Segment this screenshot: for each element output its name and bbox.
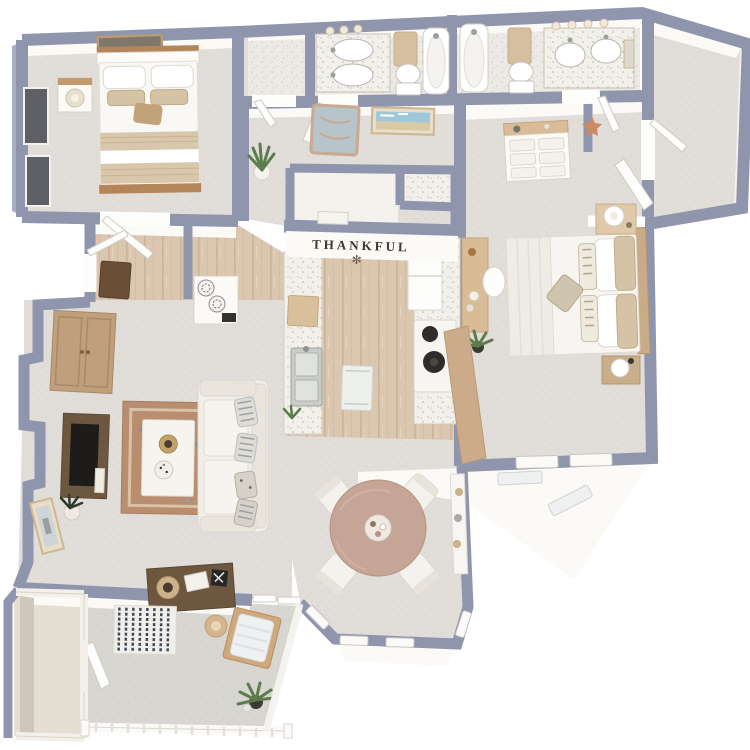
tv: [69, 423, 99, 486]
toilet: [396, 64, 421, 95]
sofa-arm: [200, 380, 256, 396]
throw-pillow: [133, 102, 163, 125]
books: [222, 313, 236, 322]
dresser: [504, 120, 571, 181]
decor: [626, 222, 632, 228]
kitchen-sink: [291, 346, 322, 406]
window: [340, 636, 368, 646]
vanity-light: [326, 27, 334, 35]
toilet: [509, 62, 534, 93]
bathroom-1: [316, 25, 449, 95]
window: [516, 455, 558, 468]
table-lamp: [611, 359, 629, 377]
thankful-decor-icon: ✻: [351, 253, 361, 267]
centerpiece: [365, 515, 391, 541]
tv-console: [61, 413, 110, 499]
window: [26, 156, 50, 206]
bathroom-2: [460, 19, 634, 93]
faucet: [433, 33, 439, 39]
vanity-light: [340, 26, 348, 34]
decor: [466, 304, 474, 312]
wall-quote-text: THANKFUL: [312, 237, 410, 255]
decorative-plate: [198, 280, 214, 296]
pillow: [234, 471, 257, 500]
doormat: [99, 261, 131, 299]
vanity: [544, 19, 634, 88]
pillow: [614, 236, 636, 291]
vanity-light: [354, 25, 362, 33]
beach-art: [372, 107, 435, 135]
pillow: [234, 433, 258, 464]
pillow: [150, 89, 187, 105]
console-table: [194, 276, 238, 324]
desk-chair: [483, 267, 505, 297]
writing-desk: [147, 563, 236, 613]
decor: [544, 123, 550, 129]
queen-bed: [97, 45, 202, 194]
pillow: [103, 66, 145, 89]
sink: [591, 39, 621, 63]
decor: [455, 488, 463, 496]
decorative-plate: [209, 296, 225, 312]
decor: [453, 540, 461, 548]
pillow: [234, 396, 259, 427]
window: [24, 88, 48, 144]
decor: [469, 291, 479, 301]
sink: [555, 43, 585, 67]
dish: [155, 461, 173, 479]
king-bed: [506, 227, 650, 358]
sink: [333, 39, 373, 61]
floor-plan: THANKFUL ✻: [0, 0, 750, 750]
side-table: [205, 615, 227, 637]
sink: [333, 64, 373, 86]
hall-rug: [311, 105, 359, 155]
round-dining-table: [330, 480, 426, 576]
decor: [468, 248, 476, 256]
towel: [508, 28, 531, 64]
faucet: [303, 346, 309, 352]
window: [386, 638, 414, 648]
sofa: [198, 380, 268, 532]
sliding-door: [278, 597, 301, 604]
laundry-floor: [402, 173, 453, 203]
pillow: [151, 65, 193, 88]
sliding-door: [253, 595, 276, 602]
towel: [394, 32, 417, 66]
bathtub: [423, 28, 449, 94]
striped-outdoor-rug: [114, 605, 177, 654]
nightstand: [602, 356, 640, 384]
window: [570, 453, 612, 466]
pantry-shelf-item: [318, 211, 348, 224]
vanity-light: [568, 21, 576, 29]
decor: [454, 514, 462, 522]
cutting-board: [287, 295, 319, 327]
armoire: [50, 310, 116, 393]
vanity: [316, 25, 390, 92]
pillow: [616, 294, 638, 349]
nightstand: [596, 204, 636, 234]
decor: [628, 358, 634, 364]
vanity-light: [552, 22, 560, 30]
window: [498, 471, 543, 485]
vanity-light: [584, 20, 592, 28]
bathtub: [460, 24, 488, 92]
coffee-table: [141, 420, 194, 497]
nightstand: [58, 78, 92, 112]
vanity-light: [600, 19, 608, 27]
console-table: [450, 474, 467, 574]
faucet: [471, 29, 477, 35]
kitchen-counter-left: [284, 252, 322, 434]
floor-plan-canvas: THANKFUL ✻: [0, 0, 750, 750]
framed-picture: [624, 40, 634, 68]
